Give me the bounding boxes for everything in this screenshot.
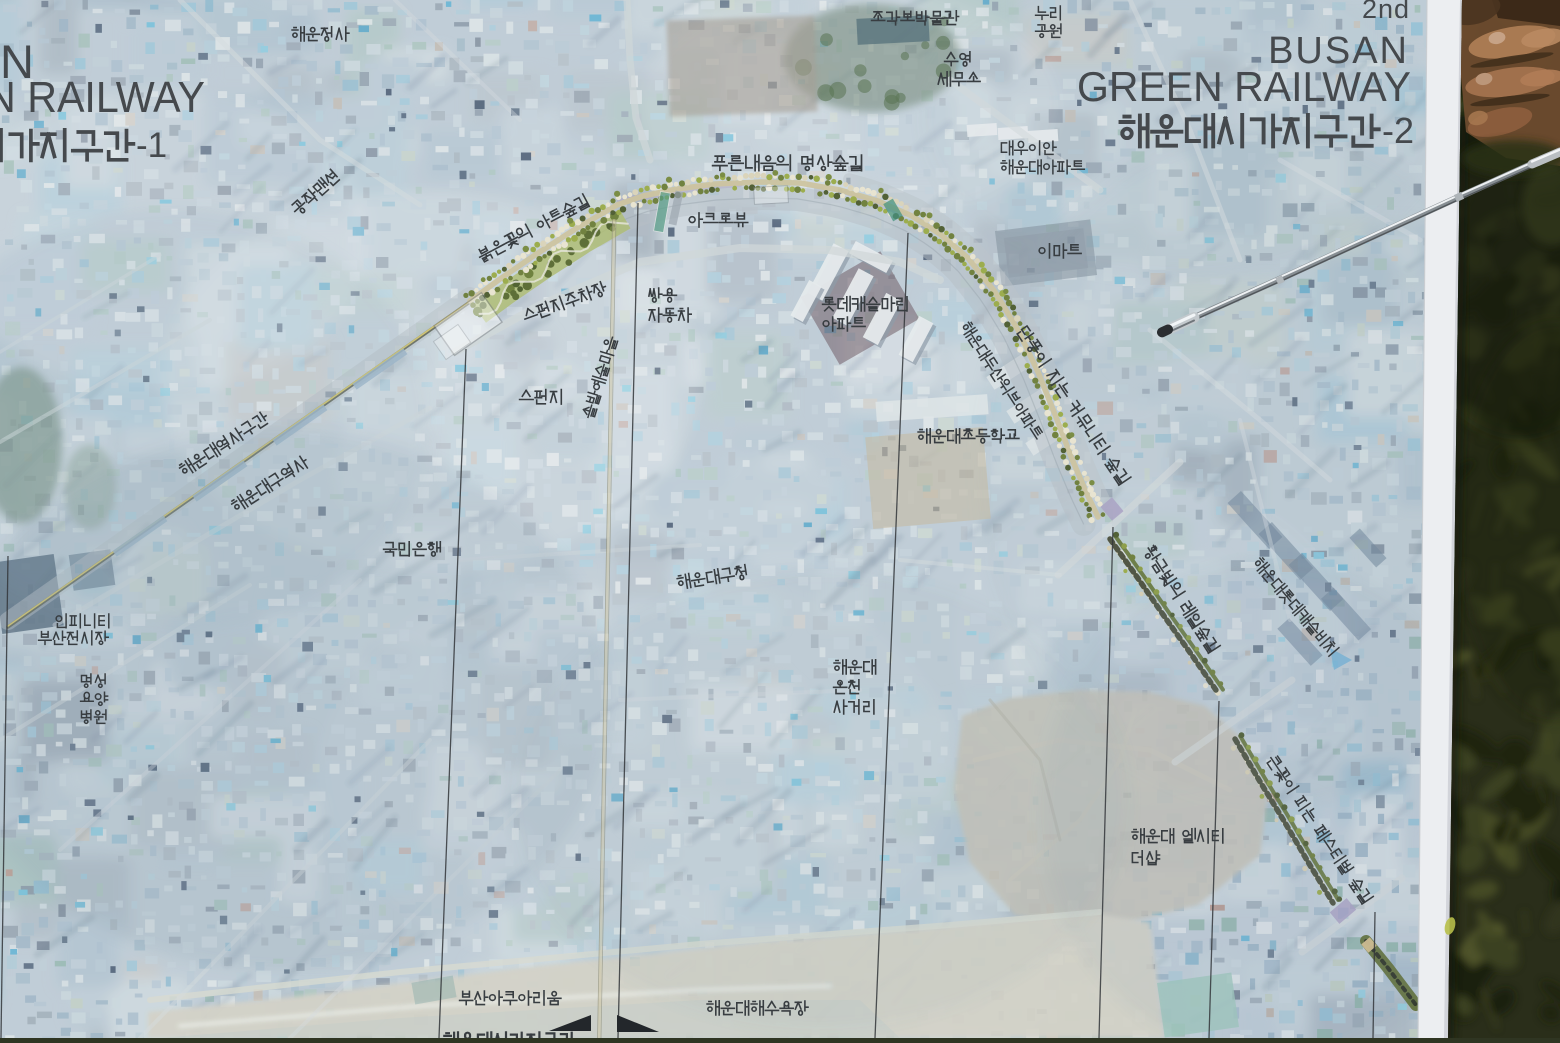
svg-text:2nd: 2nd	[1362, 0, 1410, 24]
svg-text:-2: -2	[1382, 110, 1414, 151]
svg-text:GREEN RAILWAY: GREEN RAILWAY	[1077, 63, 1411, 110]
svg-text:N RAILWAY: N RAILWAY	[0, 73, 205, 122]
svg-text:-1: -1	[136, 126, 167, 165]
